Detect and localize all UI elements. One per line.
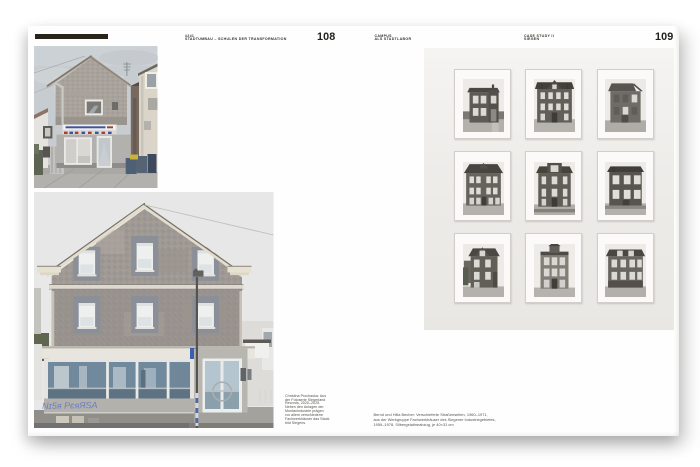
svg-text:Nɪ5я PєяЯSA: Nɪ5я PєяЯSA <box>42 400 98 411</box>
